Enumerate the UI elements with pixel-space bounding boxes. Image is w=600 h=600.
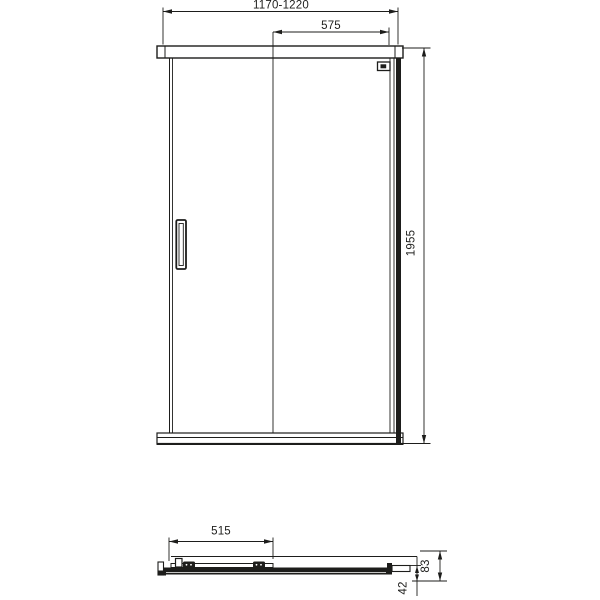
right-wall-profile	[396, 48, 401, 444]
fixed-panel-width-label: 575	[321, 20, 341, 32]
dimension-rail-depth: 42	[398, 557, 422, 597]
door-arrow-right	[264, 539, 273, 544]
plan-roller-right	[253, 562, 265, 569]
width-arrow-right	[389, 9, 398, 14]
panel-edges	[170, 32, 395, 433]
profile-depth-arrow-bottom	[438, 573, 442, 582]
guide-bracket-pad	[381, 64, 387, 68]
plan-view: 515 42 83	[158, 526, 447, 597]
plan-roller-left-dot-2	[190, 564, 192, 566]
plan-roller-right-dot-2	[260, 564, 262, 566]
bottom-rail-body	[157, 433, 403, 444]
technical-drawing: 1170-1220 575 1955	[0, 0, 600, 600]
guide-bracket	[378, 62, 391, 71]
profile-depth-label: 83	[420, 559, 432, 572]
width-arrow-left	[163, 9, 172, 14]
front-view: 1170-1220 575 1955	[157, 0, 431, 444]
profile-depth-arrow-top	[438, 551, 442, 560]
dimension-height: 1955	[402, 48, 431, 444]
rail-depth-label: 42	[398, 581, 410, 594]
dimension-fixed-panel: 575	[273, 20, 389, 45]
handle-outer	[176, 220, 186, 269]
plan-right-bracket-riser	[387, 563, 392, 575]
height-arrow-top	[422, 48, 426, 57]
plan-rail	[162, 568, 392, 575]
plan-rail-bar	[162, 568, 392, 575]
rail-depth-arrow-top	[415, 566, 419, 573]
plan-end-stop	[176, 559, 183, 568]
plan-roller-left	[183, 562, 195, 569]
bottom-rail	[157, 433, 404, 444]
top-rail-body	[157, 46, 403, 58]
plan-right-bracket-arm	[392, 566, 410, 572]
dimension-width-range: 1170-1220	[163, 0, 398, 45]
height-label: 1955	[406, 230, 418, 256]
top-rail	[157, 46, 403, 58]
door-panel-width-label: 515	[211, 526, 231, 538]
plan-right-bracket	[387, 563, 410, 575]
plan-roller-right-dot-1	[256, 564, 258, 566]
door-handle	[176, 220, 186, 269]
dimension-door-panel: 515	[169, 526, 273, 562]
plan-sliding-panel	[171, 559, 273, 569]
drawing-canvas: 1170-1220 575 1955	[0, 0, 600, 600]
width-range-label: 1170-1220	[253, 0, 309, 12]
fixed-arrow-right	[380, 30, 389, 35]
plan-left-bracket-foot	[159, 571, 167, 576]
plan-roller-left-dot-1	[186, 564, 188, 566]
fixed-arrow-left	[273, 30, 282, 35]
door-arrow-left	[169, 539, 178, 544]
height-arrow-bottom	[422, 435, 426, 444]
rail-depth-arrow-bottom	[415, 575, 419, 582]
